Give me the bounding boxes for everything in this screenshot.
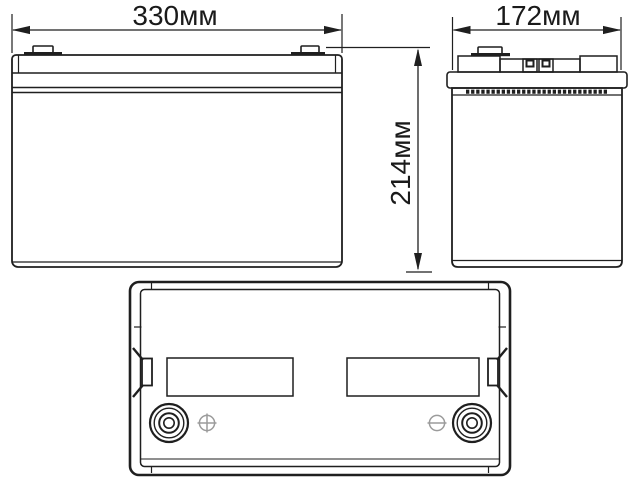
top-view-inner-wall bbox=[141, 290, 500, 467]
height-dimension-label: 214мм bbox=[385, 120, 416, 205]
terminal-base bbox=[291, 52, 325, 55]
terminal-post bbox=[301, 46, 319, 53]
terminal-base bbox=[24, 52, 62, 55]
arrowhead-down-icon bbox=[414, 253, 422, 271]
side-body-outline bbox=[452, 88, 622, 267]
clip-notch-lower bbox=[497, 385, 507, 397]
connector-left-inner bbox=[527, 61, 534, 67]
right-mounting-clip bbox=[488, 327, 507, 397]
terminal-post bbox=[478, 47, 502, 54]
terminal-post bbox=[33, 46, 53, 53]
battery-dimension-diagram: 330мм 214мм bbox=[0, 0, 640, 480]
width-dimension: 330мм bbox=[12, 0, 342, 53]
positive-terminal bbox=[150, 404, 188, 442]
arrowhead-right-icon bbox=[603, 26, 621, 34]
diagram-canvas: 330мм 214мм bbox=[0, 0, 640, 480]
front-left-terminal bbox=[24, 46, 62, 55]
side-lid-flange bbox=[447, 72, 627, 88]
depth-dimension-label: 172мм bbox=[495, 0, 580, 31]
top-view bbox=[130, 282, 510, 475]
left-vent-plate bbox=[167, 358, 293, 396]
side-block-left bbox=[458, 56, 500, 72]
front-right-terminal bbox=[291, 46, 325, 55]
right-vent-plate bbox=[347, 358, 479, 396]
side-view bbox=[447, 47, 627, 267]
clip-notch-lower bbox=[133, 385, 143, 397]
top-view-outer-wall bbox=[130, 282, 510, 475]
front-view bbox=[12, 46, 342, 267]
side-block-middle bbox=[500, 59, 580, 72]
connector-right-inner bbox=[543, 61, 550, 67]
side-terminal bbox=[471, 47, 510, 56]
left-mounting-clip bbox=[133, 327, 152, 397]
side-terminal-connectors bbox=[523, 59, 553, 72]
side-block-right bbox=[580, 56, 617, 72]
minus-symbol-icon bbox=[428, 415, 447, 430]
plus-symbol-icon bbox=[198, 414, 217, 433]
arrowhead-up-icon bbox=[414, 49, 422, 67]
arrowhead-left-icon bbox=[12, 26, 30, 34]
terminal-base bbox=[471, 53, 510, 56]
width-dimension-label: 330мм bbox=[132, 0, 217, 31]
arrowhead-right-icon bbox=[324, 26, 342, 34]
clip-tab bbox=[488, 359, 498, 386]
clip-tab bbox=[142, 359, 152, 386]
arrowhead-left-icon bbox=[453, 26, 471, 34]
negative-terminal bbox=[453, 404, 491, 442]
